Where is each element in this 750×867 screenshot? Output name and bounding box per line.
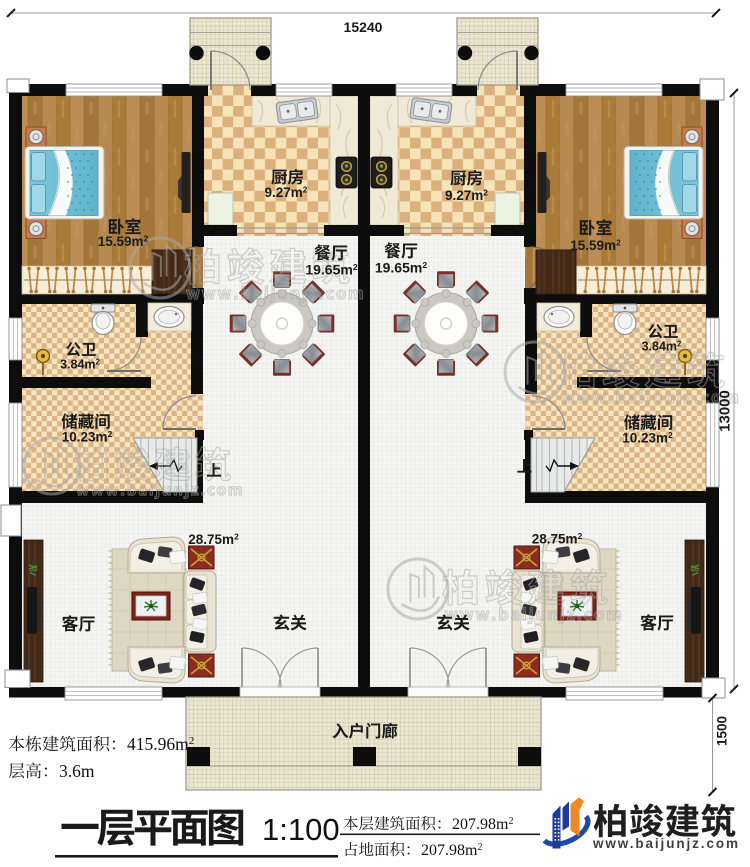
svg-text:1500: 1500 (715, 716, 730, 746)
svg-text:9.27m2: 9.27m2 (445, 188, 488, 203)
svg-text:10.23m2: 10.23m2 (62, 429, 113, 444)
svg-text:www.baijunjz.com: www.baijunjz.com (592, 836, 740, 851)
svg-text:10.23m2: 10.23m2 (622, 430, 673, 445)
svg-text:19.65m2: 19.65m2 (305, 262, 357, 278)
svg-text:28.75m2: 28.75m2 (532, 531, 583, 546)
svg-text:207.98m2: 207.98m2 (452, 816, 513, 833)
svg-text:19.65m2: 19.65m2 (375, 260, 427, 276)
svg-text:15.59m2: 15.59m2 (570, 238, 621, 253)
svg-text:415.96m2: 415.96m2 (127, 734, 194, 754)
svg-text:1:100: 1:100 (262, 812, 340, 847)
svg-text:15.59m2: 15.59m2 (98, 234, 149, 249)
svg-text:3.84m2: 3.84m2 (642, 340, 682, 354)
svg-text:15240: 15240 (344, 19, 383, 35)
svg-text:28.75m2: 28.75m2 (188, 532, 239, 547)
svg-text:3.6m: 3.6m (59, 761, 95, 781)
svg-text:3.84m2: 3.84m2 (60, 358, 100, 372)
svg-text:207.98m2: 207.98m2 (421, 842, 482, 859)
svg-text:13000: 13000 (717, 390, 734, 432)
svg-text:9.27m2: 9.27m2 (265, 185, 308, 200)
